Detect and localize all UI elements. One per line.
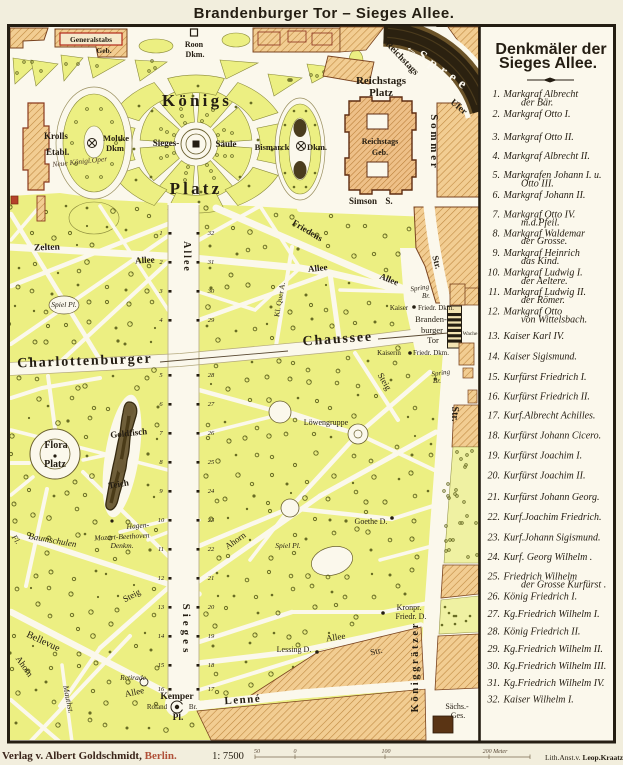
svg-text:Bismarck: Bismarck	[255, 142, 290, 152]
svg-text:der Römer.: der Römer.	[521, 295, 565, 306]
svg-text:Kurfürst Johann Cicero.: Kurfürst Johann Cicero.	[503, 431, 602, 442]
svg-text:16.: 16.	[488, 392, 501, 403]
svg-text:Moltke: Moltke	[103, 133, 129, 143]
svg-text:Kemper: Kemper	[160, 692, 194, 702]
svg-text:Geb.: Geb.	[96, 46, 111, 55]
svg-text:Ges.: Ges.	[451, 711, 465, 720]
svg-text:200 Meter: 200 Meter	[483, 749, 508, 755]
svg-text:Tor: Tor	[427, 335, 439, 345]
svg-text:3.: 3.	[492, 132, 501, 143]
svg-text:4.: 4.	[493, 151, 501, 162]
svg-text:19.: 19.	[488, 451, 501, 462]
svg-text:18: 18	[208, 662, 215, 669]
svg-text:27.: 27.	[488, 609, 501, 620]
svg-text:11.: 11.	[488, 287, 500, 298]
svg-text:Roland: Roland	[147, 703, 168, 711]
svg-text:20: 20	[208, 604, 215, 611]
svg-text:Str.: Str.	[449, 407, 460, 422]
svg-text:Kg.Friedrich Wilhelm IV.: Kg.Friedrich Wilhelm IV.	[503, 678, 606, 689]
svg-text:Denkm.: Denkm.	[109, 541, 133, 550]
svg-text:1: 1	[159, 230, 162, 237]
svg-text:Markgraf Otto II.: Markgraf Otto II.	[503, 132, 574, 143]
svg-text:Br.: Br.	[422, 292, 430, 300]
svg-text:25.: 25.	[488, 572, 501, 583]
svg-text:von Wittelsbach.: von Wittelsbach.	[521, 315, 587, 326]
svg-text:Spiel Pl.: Spiel Pl.	[51, 300, 77, 309]
svg-text:Kurf.Albrecht Achilles.: Kurf.Albrecht Achilles.	[503, 411, 596, 422]
svg-text:32.: 32.	[487, 695, 501, 706]
svg-text:Kurfürst Johann Georg.: Kurfürst Johann Georg.	[503, 492, 600, 503]
svg-text:Reichstags: Reichstags	[356, 75, 407, 87]
svg-text:S.: S.	[385, 196, 392, 206]
svg-text:12: 12	[158, 575, 165, 582]
svg-text:Friedr. D.: Friedr. D.	[396, 612, 427, 621]
svg-text:Otto III.: Otto III.	[521, 179, 554, 190]
svg-text:Allee: Allee	[307, 262, 327, 274]
svg-text:1.: 1.	[493, 89, 501, 100]
svg-text:19: 19	[208, 633, 215, 640]
svg-text:30: 30	[207, 288, 215, 295]
svg-text:100: 100	[382, 749, 391, 755]
svg-text:Kaiser Karl IV.: Kaiser Karl IV.	[503, 331, 565, 342]
svg-text:20.: 20.	[488, 471, 501, 482]
svg-text:der Bär.: der Bär.	[521, 98, 553, 109]
svg-text:König Friedrich I.: König Friedrich I.	[503, 592, 578, 603]
svg-text:Kronpr.: Kronpr.	[397, 603, 422, 612]
svg-text:Branden-: Branden-	[415, 314, 447, 324]
svg-text:26.: 26.	[488, 592, 501, 603]
svg-text:1: 7500: 1: 7500	[212, 751, 244, 762]
svg-text:Wache: Wache	[463, 331, 478, 337]
svg-text:Allee: Allee	[135, 255, 155, 266]
svg-text:Markgraf Johann II.: Markgraf Johann II.	[503, 190, 586, 201]
svg-text:50: 50	[254, 749, 260, 755]
svg-text:31: 31	[207, 259, 215, 266]
svg-text:Kurf. Georg Wilhelm .: Kurf. Georg Wilhelm .	[503, 552, 593, 563]
svg-text:Kg.Friedrich Wilhelm II.: Kg.Friedrich Wilhelm II.	[503, 644, 603, 655]
svg-text:Pl.: Pl.	[173, 713, 184, 723]
svg-text:28: 28	[208, 372, 215, 379]
svg-text:6.: 6.	[493, 190, 501, 201]
svg-text:Kurfürst Joachim I.: Kurfürst Joachim I.	[503, 451, 583, 462]
svg-text:Br.: Br.	[433, 377, 441, 385]
svg-text:Sieges Allee.: Sieges Allee.	[499, 55, 597, 72]
svg-text:Flora: Flora	[44, 440, 67, 451]
svg-text:Markgraf Otto I.: Markgraf Otto I.	[503, 109, 571, 120]
svg-text:5.: 5.	[493, 170, 501, 181]
svg-text:27: 27	[208, 401, 215, 408]
svg-text:15.: 15.	[488, 372, 501, 383]
svg-text:Kurf.Johann Sigismund.: Kurf.Johann Sigismund.	[503, 533, 601, 544]
svg-text:Generalstabs: Generalstabs	[70, 35, 112, 44]
svg-text:Platz: Platz	[369, 87, 393, 99]
svg-text:Etabl.: Etabl.	[46, 147, 69, 157]
svg-text:12.: 12.	[488, 307, 501, 318]
svg-text:Löwengruppe: Löwengruppe	[304, 418, 349, 427]
svg-text:Allee: Allee	[181, 241, 192, 273]
svg-text:Königs: Königs	[162, 91, 232, 110]
svg-text:Reichstags: Reichstags	[362, 137, 398, 146]
svg-text:das Kind.: das Kind.	[521, 256, 559, 267]
svg-text:Kg.Friedrich Wilhelm I.: Kg.Friedrich Wilhelm I.	[503, 609, 600, 620]
svg-text:14: 14	[158, 633, 165, 640]
svg-text:Friedr. Dkm.: Friedr. Dkm.	[418, 304, 454, 312]
svg-text:der Aeltere.: der Aeltere.	[521, 276, 568, 287]
svg-text:2.: 2.	[493, 109, 501, 120]
svg-text:Brandenburger Tor – Sieges All: Brandenburger Tor – Sieges Allee.	[194, 5, 455, 22]
svg-text:Dkm.: Dkm.	[307, 142, 327, 152]
svg-text:Säule: Säule	[215, 139, 236, 149]
svg-text:Markgraf Albrecht II.: Markgraf Albrecht II.	[503, 151, 590, 162]
svg-text:24: 24	[208, 488, 215, 495]
svg-text:Krolls: Krolls	[44, 131, 68, 141]
svg-text:der Grosse Kurfürst .: der Grosse Kurfürst .	[521, 580, 606, 591]
svg-text:Kg.Friedrich Wilhelm III.: Kg.Friedrich Wilhelm III.	[503, 661, 607, 672]
svg-text:Lessing D.: Lessing D.	[277, 645, 312, 654]
svg-text:17.: 17.	[488, 411, 501, 422]
svg-text:21: 21	[208, 575, 215, 582]
svg-text:30.: 30.	[487, 661, 501, 672]
svg-text:Friedr. Dkm.: Friedr. Dkm.	[413, 349, 449, 357]
svg-text:Sieges-: Sieges-	[153, 138, 180, 148]
svg-text:9.: 9.	[493, 248, 501, 259]
svg-text:10.: 10.	[488, 268, 501, 279]
svg-text:31.: 31.	[487, 678, 501, 689]
svg-text:Kaiser: Kaiser	[390, 304, 409, 312]
svg-text:Kurfürst Friedrich I.: Kurfürst Friedrich I.	[503, 372, 587, 383]
svg-text:23.: 23.	[488, 533, 501, 544]
svg-text:17: 17	[208, 686, 215, 693]
svg-text:Br.: Br.	[189, 703, 198, 711]
svg-text:Simson: Simson	[349, 196, 377, 206]
svg-text:29.: 29.	[488, 644, 501, 655]
svg-text:Sächs.-: Sächs.-	[445, 702, 469, 711]
svg-text:S o m m e r: S o m m e r	[428, 114, 440, 168]
svg-text:Platz: Platz	[170, 179, 223, 198]
svg-text:Kurf.Joachim Friedrich.: Kurf.Joachim Friedrich.	[503, 512, 602, 523]
svg-text:burger: burger	[421, 325, 443, 335]
svg-text:der Grosse.: der Grosse.	[521, 236, 567, 247]
svg-text:Zelten: Zelten	[34, 243, 61, 254]
svg-text:26: 26	[208, 430, 215, 437]
svg-text:Sieges: Sieges	[180, 604, 192, 657]
svg-text:Retirade: Retirade	[119, 673, 146, 682]
svg-text:25: 25	[208, 459, 215, 466]
svg-text:21.: 21.	[488, 492, 501, 503]
svg-text:Dkm.: Dkm.	[186, 50, 205, 59]
svg-text:8.: 8.	[493, 229, 501, 240]
svg-text:28.: 28.	[488, 627, 501, 638]
svg-text:32: 32	[207, 230, 215, 237]
svg-text:Kaiserin: Kaiserin	[377, 349, 401, 357]
svg-text:18.: 18.	[488, 431, 501, 442]
svg-text:13: 13	[158, 604, 165, 611]
svg-text:Geb.: Geb.	[372, 148, 388, 157]
svg-text:Lith.Anst.v. Leop.Kraatz,Berli: Lith.Anst.v. Leop.Kraatz,Berlin.	[545, 753, 623, 762]
svg-text:Kurfürst Joachim II.: Kurfürst Joachim II.	[503, 471, 586, 482]
svg-text:m.d.Pfeil.: m.d.Pfeil.	[521, 218, 560, 229]
svg-text:10: 10	[158, 517, 165, 524]
svg-text:Kaiser Wilhelm I.: Kaiser Wilhelm I.	[503, 695, 574, 706]
svg-text:Spiel Pl.: Spiel Pl.	[275, 541, 301, 550]
svg-text:24.: 24.	[488, 552, 501, 563]
svg-text:11: 11	[158, 546, 164, 553]
svg-text:Platz: Platz	[44, 459, 66, 470]
svg-text:23: 23	[208, 517, 215, 524]
svg-text:Goethe D.: Goethe D.	[355, 517, 388, 526]
svg-text:22.: 22.	[488, 512, 501, 523]
svg-text:0: 0	[294, 749, 297, 755]
svg-text:13.: 13.	[488, 331, 501, 342]
svg-text:22: 22	[208, 546, 215, 553]
svg-text:15: 15	[158, 662, 165, 669]
svg-text:Kurfürst Friedrich II.: Kurfürst Friedrich II.	[503, 392, 590, 403]
svg-text:14.: 14.	[488, 352, 501, 363]
svg-text:7.: 7.	[493, 210, 501, 221]
svg-text:Dkm: Dkm	[106, 143, 124, 153]
svg-text:K ö n i g g r ä t z e r: K ö n i g g r ä t z e r	[410, 623, 421, 712]
svg-text:Verlag v. Albert Goldschmidt,: Verlag v. Albert Goldschmidt, Berlin.	[2, 750, 177, 762]
svg-text:Roon: Roon	[185, 40, 204, 49]
svg-text:Kaiser Sigismund.: Kaiser Sigismund.	[503, 352, 577, 363]
svg-text:König Friedrich II.: König Friedrich II.	[503, 627, 581, 638]
svg-text:29: 29	[208, 317, 215, 324]
svg-text:Lenné: Lenné	[224, 693, 262, 708]
